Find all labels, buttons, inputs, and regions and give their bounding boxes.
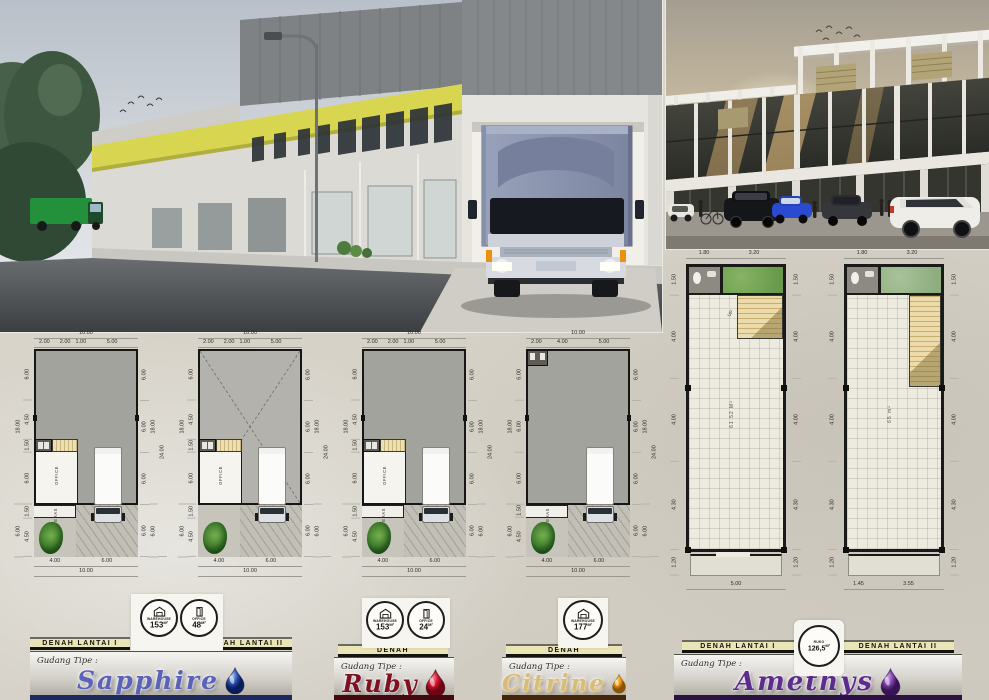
dim-bottom-total: 10.00 <box>198 569 302 577</box>
denah-bar-amethys-lantai-2: DENAH LANTAI II <box>842 640 954 653</box>
teras-strip: TERAS <box>362 505 404 518</box>
dim-label: 4.00 <box>362 559 404 565</box>
dim-label: 6.00 <box>187 349 196 401</box>
column-marker <box>33 415 37 421</box>
office-room: OFFICE <box>364 451 406 503</box>
ruby-gem-icon <box>425 669 446 697</box>
dim-top-segments: 2.00 2.00 1.00 5.00 <box>362 340 466 348</box>
office-room-label: OFFICE <box>218 466 223 485</box>
dim-label: 24.00 <box>158 349 167 557</box>
dim-label: 1.80 <box>686 251 722 257</box>
warehouse-area-badge: WAREHOUSE 153M² <box>140 599 178 637</box>
dim-label: 6.00 <box>468 349 477 401</box>
badge-value: 48M² <box>192 621 206 630</box>
office-area-badge: OFFICE 24M² <box>407 601 445 639</box>
accent-strip <box>502 695 626 700</box>
column-marker <box>685 547 691 553</box>
dim-bottom-total: 10.00 <box>526 569 630 577</box>
green-roof-patch <box>880 267 941 295</box>
dim-label: 4.30 <box>792 461 801 550</box>
dim-left-outer: 18.00 6.00 <box>506 349 515 557</box>
palm-tree <box>367 522 391 554</box>
dim-right-outer: 24.00 <box>158 349 167 557</box>
dim-label: 1.50 <box>351 505 360 519</box>
plan-drawing: OFFICE TERAS <box>34 349 138 557</box>
dim-right-outer: 24.00 <box>486 349 495 557</box>
dim-label: 1.50 <box>187 505 196 519</box>
toilet-room <box>35 439 52 452</box>
toilet-room <box>199 439 216 452</box>
denah-bar-label: DENAH LANTAI I <box>42 640 117 647</box>
ruko-room: UP 61.52 M² <box>686 264 786 552</box>
dim-label: 4.50 <box>351 518 360 557</box>
badge-unit: M² <box>201 620 206 625</box>
column-marker <box>781 547 787 553</box>
dim-left: 1.50 4.00 4.00 4.30 1.20 <box>828 264 837 576</box>
dim-label: 4.50 <box>23 518 32 557</box>
dim-label: 6.00 <box>468 505 477 557</box>
dim-right-inner: 6.00 6.00 6.00 6.00 <box>304 349 313 557</box>
room-area-label: 65 m² <box>887 405 893 423</box>
dim-label: 4.30 <box>950 461 959 550</box>
dim-top-segments: 1.80 3.20 <box>844 251 944 259</box>
badge-value: 153M² <box>376 623 394 632</box>
dim-label: 6.00 <box>240 559 302 565</box>
dim-right-mid: 18.00 6.00 <box>477 349 486 557</box>
toilet-room <box>847 267 880 295</box>
floor-plan-sapphire-lantai-2: 10.00 2.00 2.00 1.00 5.00 18.00 6.00 6.0… <box>178 331 340 607</box>
dim-label: 6.00 <box>140 453 149 505</box>
dark-cladding <box>462 0 662 95</box>
dim-label: 4.00 <box>792 296 801 379</box>
dim-label: 6.00 <box>140 505 149 557</box>
dim-label: 1.50 <box>950 264 959 296</box>
dim-right-inner: 6.00 6.00 6.00 6.00 <box>468 349 477 557</box>
denah-bar-label: DENAH LANTAI II <box>859 643 938 650</box>
citrine-gem-icon <box>612 670 626 697</box>
dim-label: 18.00 <box>14 349 23 505</box>
room-area-label: 61.52 M² <box>729 400 735 428</box>
column-marker <box>843 547 849 553</box>
dim-bottom-total: 10.00 <box>34 569 138 577</box>
dim-label: 4.00 <box>950 379 959 462</box>
dim-label: 6.00 <box>304 505 313 557</box>
dim-label: 6.00 <box>304 453 313 505</box>
office-door-icon <box>193 606 206 617</box>
dim-label: 6.00 <box>351 453 360 505</box>
dim-top-segments: 2.00 4.00 5.00 <box>526 340 630 348</box>
column-marker <box>939 385 945 391</box>
dim-bottom-total: 5.00 <box>686 582 786 590</box>
office-room: OFFICE <box>36 451 78 503</box>
dim-bottom-segments: 4.00 6.00 <box>362 559 466 567</box>
badge-unit: M² <box>163 620 168 625</box>
truck-cab <box>94 506 122 523</box>
dim-label: 10.00 <box>34 331 138 337</box>
ruko-facade-render <box>666 0 989 249</box>
warehouse-icon <box>379 608 392 619</box>
dim-bottom-segments: 4.00 6.00 <box>526 559 630 567</box>
badge-unit: M² <box>825 643 830 648</box>
dim-label: 1.20 <box>670 550 679 576</box>
dim-label: 6.00 <box>632 505 641 557</box>
dim-label: 5.00 <box>578 340 630 346</box>
dim-label: 6.00 <box>23 453 32 505</box>
dim-right-inner: 6.00 6.00 6.00 6.00 <box>632 349 641 557</box>
office-room: OFFICE <box>200 451 242 503</box>
dim-label: 18.00 <box>149 349 158 505</box>
dim-left-outer: 18.00 6.00 <box>14 349 23 557</box>
warehouse-area-badge: WAREHOUSE 153M² <box>366 601 404 639</box>
porch <box>690 554 782 576</box>
staircase <box>52 439 78 452</box>
dim-label: 6.00 <box>515 349 524 401</box>
office-area-badge: OFFICE 48M² <box>180 599 218 637</box>
dim-label: 6.00 <box>477 505 486 558</box>
dim-label: 6.00 <box>506 505 515 558</box>
dim-label: 1.50 <box>792 264 801 296</box>
ruko-area-badge: RUKO 126,5M² <box>798 625 840 667</box>
badge-value: 24M² <box>419 623 433 632</box>
dim-top-total: 10.00 <box>526 331 630 339</box>
dim-top-segments: 1.80 3.20 <box>686 251 786 259</box>
dim-right-mid: 18.00 6.00 <box>313 349 322 557</box>
parked-truck-topview <box>422 447 450 523</box>
dim-label: 4.00 <box>34 559 76 565</box>
dim-label: 10.00 <box>362 569 466 575</box>
warehouse-hall: OFFICE <box>34 349 138 505</box>
dim-label: 6.00 <box>304 401 313 453</box>
type-name-ruby: Ruby <box>342 669 418 698</box>
dim-label: 6.00 <box>351 349 360 401</box>
staircase <box>216 439 242 452</box>
column-marker <box>135 415 139 421</box>
dim-label: 24.00 <box>486 349 495 557</box>
brochure-page: 10.00 2.00 2.00 1.00 5.00 18.00 6.00 6.0… <box>0 0 989 700</box>
dim-label: 6.00 <box>140 349 149 401</box>
dim-label: 24.00 <box>650 349 659 557</box>
accent-strip <box>674 695 962 700</box>
dim-label: 18.00 <box>477 349 486 505</box>
dim-label: 3.20 <box>722 251 786 257</box>
amethys-gem-icon <box>880 668 901 696</box>
toilet-room <box>689 267 722 295</box>
dim-label: 4.00 <box>670 296 679 379</box>
dim-label: 1.50 <box>351 439 360 453</box>
truck-windshield <box>588 508 612 514</box>
palm-tree <box>203 522 227 554</box>
denah-bar-sapphire-lantai-1: DENAH LANTAI I <box>30 637 130 650</box>
dim-left: 1.50 4.00 4.00 4.30 1.20 <box>670 264 679 576</box>
dim-label: 6.00 <box>149 505 158 558</box>
column-marker <box>781 385 787 391</box>
column-marker <box>939 547 945 553</box>
dim-label: 18.00 <box>641 349 650 505</box>
office-room-label: OFFICE <box>382 466 387 485</box>
dim-left-inner: 6.00 4.50 1.50 6.00 1.50 4.50 <box>351 349 360 557</box>
dim-bottom-total: 10.00 <box>362 569 466 577</box>
dim-right-outer: 24.00 <box>322 349 331 557</box>
denah-bar-amethys-lantai-1: DENAH LANTAI I <box>682 640 794 653</box>
dim-top-total: 10.00 <box>198 331 302 339</box>
dim-label: 6.00 <box>568 559 630 565</box>
dim-label: 2.00 <box>383 340 404 346</box>
dim-right: 1.50 4.00 4.00 4.30 1.20 <box>792 264 801 576</box>
type-name-sapphire: Sapphire <box>77 666 219 695</box>
office-door-icon <box>420 608 433 619</box>
truck-trailer <box>258 447 286 505</box>
plan-drawing: OFFICE TERAS <box>362 349 466 557</box>
badge-number: 48 <box>192 621 201 630</box>
type-name-row: Citrine <box>502 658 626 700</box>
warehouse-hall <box>526 349 630 505</box>
garden-patch <box>722 267 783 295</box>
dim-top-segments: 2.00 2.00 1.00 5.00 <box>34 340 138 348</box>
dim-label: 5.00 <box>414 340 466 346</box>
type-name-row: Sapphire <box>30 652 292 700</box>
dim-label: 6.00 <box>632 453 641 505</box>
column-marker <box>627 415 631 421</box>
teras-strip: TERAS <box>526 505 568 518</box>
dim-label: 1.00 <box>403 340 414 346</box>
warehouse-area-badge: WAREHOUSE 177M² <box>563 600 603 640</box>
denah-bar-label: DENAH LANTAI I <box>700 643 775 650</box>
column-marker <box>361 415 365 421</box>
dim-label: 6.00 <box>632 349 641 401</box>
parked-truck-topview <box>586 447 614 523</box>
floor-plan-amethys-lantai-2: 1.80 3.20 1.50 4.00 4.00 4.30 1.20 65 m² <box>826 250 962 622</box>
dim-left-inner: 6.00 6.00 6.00 1.50 4.50 <box>515 349 524 557</box>
dim-label: 10.00 <box>526 331 630 337</box>
truck-windshield <box>96 508 120 514</box>
plan-drawing: OFFICE <box>198 349 302 557</box>
dim-label: 1.50 <box>23 439 32 453</box>
truck-trailer <box>586 447 614 505</box>
dim-label: 18.00 <box>342 349 351 505</box>
gudang-tipe-panel-sapphire: Gudang Tipe : Sapphire <box>30 651 292 700</box>
dim-label: 2.00 <box>198 340 219 346</box>
dim-label: 4.50 <box>351 401 360 440</box>
truck-trailer <box>94 447 122 505</box>
badge-value: 126,5M² <box>808 644 830 652</box>
dim-label: 1.50 <box>187 439 196 453</box>
dim-label: 2.00 <box>34 340 55 346</box>
dim-label: 6.00 <box>14 505 23 558</box>
dim-bottom-segments: 4.00 6.00 <box>198 559 302 567</box>
floor-plan-ruby: 10.00 2.00 2.00 1.00 5.00 18.00 6.00 6.0… <box>342 331 504 607</box>
dim-label: 18.00 <box>313 349 322 505</box>
dim-label: 5.00 <box>250 340 302 346</box>
dim-top-segments: 2.00 2.00 1.00 5.00 <box>198 340 302 348</box>
dim-label: 4.00 <box>828 379 837 462</box>
dim-top-total: 10.00 <box>362 331 466 339</box>
dim-label: 5.00 <box>86 340 138 346</box>
warehouse-icon <box>153 606 166 617</box>
dim-label: 10.00 <box>362 331 466 337</box>
truck-cab <box>258 506 286 523</box>
floor-plan-sapphire-lantai-1: 10.00 2.00 2.00 1.00 5.00 18.00 6.00 6.0… <box>14 331 176 607</box>
stair-up-label: UP <box>726 309 734 317</box>
dim-label: 6.00 <box>468 401 477 453</box>
dim-left-inner: 6.00 4.50 1.50 6.00 1.50 4.50 <box>23 349 32 557</box>
plan-drawing: UP 61.52 M² <box>686 264 786 576</box>
dim-label: 10.00 <box>34 569 138 575</box>
dim-label: 6.00 <box>140 401 149 453</box>
dim-label: 6.00 <box>342 505 351 558</box>
dim-label: 1.50 <box>670 264 679 296</box>
gudang-tipe-panel-ruby: Gudang Tipe : Ruby <box>334 657 454 700</box>
dim-label: 6.00 <box>304 349 313 401</box>
truck-windshield <box>260 508 284 514</box>
dim-label: 1.50 <box>828 264 837 296</box>
badge-unit: M² <box>587 622 592 627</box>
dim-top-total: 10.00 <box>34 331 138 339</box>
staircase <box>909 295 941 387</box>
dim-label: 2.00 <box>55 340 76 346</box>
badge-number: 177 <box>574 623 587 632</box>
dim-label: 6.00 <box>468 453 477 505</box>
dim-label: 18.00 <box>506 349 515 505</box>
dim-label: 6.00 <box>23 349 32 401</box>
dim-label: 1.00 <box>239 340 250 346</box>
dim-label: 1.20 <box>828 550 837 576</box>
dim-right-mid: 18.00 6.00 <box>641 349 650 557</box>
truck-cab <box>586 506 614 523</box>
dim-label: 2.00 <box>526 340 547 346</box>
dim-label: 6.00 <box>313 505 322 558</box>
parked-truck-topview <box>258 447 286 523</box>
dim-label: 5.00 <box>686 582 786 588</box>
palm-tree <box>531 522 555 554</box>
upper-floor-hall: OFFICE <box>198 349 302 505</box>
dim-label: 6.00 <box>515 401 524 453</box>
staircase <box>380 439 406 452</box>
dim-label: 4.00 <box>547 340 578 346</box>
dim-label: 3.20 <box>880 251 944 257</box>
column-marker <box>463 415 467 421</box>
column-marker <box>525 415 529 421</box>
dim-label: 1.00 <box>75 340 86 346</box>
column-marker <box>685 385 691 391</box>
office-room-label: OFFICE <box>54 466 59 485</box>
truck-windshield <box>424 508 448 514</box>
toilet-room <box>527 350 548 366</box>
warehouse-hall: OFFICE <box>362 349 466 505</box>
staircase <box>737 295 783 339</box>
dim-left-outer: 18.00 6.00 <box>178 349 187 557</box>
badge-number: 153 <box>376 623 389 632</box>
accent-strip <box>30 695 292 700</box>
dim-label: 6.00 <box>641 505 650 558</box>
warehouse-street-render <box>0 0 662 332</box>
plan-drawing: 65 m² <box>844 264 944 576</box>
accent-strip <box>334 695 454 700</box>
dim-bottom-segments: 4.00 6.00 <box>34 559 138 567</box>
badge-value: 153M² <box>150 621 168 630</box>
dim-label: 2.00 <box>362 340 383 346</box>
dim-label: 1.45 <box>844 582 873 588</box>
entry-door-gap <box>716 552 750 557</box>
dim-label: 10.00 <box>198 331 302 337</box>
dim-label: 6.00 <box>187 453 196 505</box>
dim-right-mid: 18.00 6.00 <box>149 349 158 557</box>
dim-label: 4.00 <box>792 379 801 462</box>
dim-label: 1.80 <box>844 251 880 257</box>
badge-number: 24 <box>419 623 428 632</box>
truck-trailer <box>422 447 450 505</box>
dim-label: 10.00 <box>526 569 630 575</box>
plan-drawing: TERAS <box>526 349 630 557</box>
dim-label: 4.50 <box>515 518 524 557</box>
badge-unit: M² <box>389 622 394 627</box>
balcony-strip <box>848 554 940 576</box>
dim-label: 1.50 <box>23 505 32 519</box>
warehouse-icon <box>577 608 590 619</box>
dim-left-inner: 6.00 4.50 1.50 6.00 1.50 4.50 <box>187 349 196 557</box>
sapphire-gem-icon <box>225 667 245 694</box>
dim-label: 6.00 <box>515 453 524 505</box>
dim-label: 18.00 <box>178 349 187 505</box>
dim-label: 6.00 <box>632 401 641 453</box>
dim-label: 4.50 <box>187 518 196 557</box>
warehouse-street-svg <box>0 0 662 332</box>
dim-right-outer: 24.00 <box>650 349 659 557</box>
type-name-citrine: Citrine <box>502 670 606 697</box>
palm-tree <box>39 522 63 554</box>
dim-label: 3.55 <box>873 582 944 588</box>
badge-number: 153 <box>150 621 163 630</box>
floor-plan-citrine: 10.00 2.00 4.00 5.00 18.00 6.00 6.00 6.0… <box>506 331 668 607</box>
dim-bottom-segments: 1.45 3.55 <box>844 582 944 590</box>
toilet-room <box>363 439 380 452</box>
ruko-room: 65 m² <box>844 264 944 552</box>
dim-label: 1.20 <box>792 550 801 576</box>
column-marker <box>843 385 849 391</box>
badge-value: 177M² <box>574 623 592 632</box>
badge-number: 126,5 <box>808 645 826 652</box>
dim-label: 4.30 <box>670 461 679 550</box>
dim-label: 24.00 <box>322 349 331 557</box>
parked-truck-topview <box>94 447 122 523</box>
floor-plan-amethys-lantai-1: 1.80 3.20 1.50 4.00 4.00 4.30 1.20 UP 61… <box>668 250 804 622</box>
dim-label: 4.00 <box>670 379 679 462</box>
ruko-facade-svg <box>666 0 989 249</box>
dim-label: 4.50 <box>23 401 32 440</box>
gudang-tipe-panel-citrine: Gudang Tipe : Citrine <box>502 657 626 700</box>
dim-label: 4.00 <box>198 559 240 565</box>
badge-unit: M² <box>428 622 433 627</box>
dim-label: 4.00 <box>950 296 959 379</box>
teras-strip: TERAS <box>34 505 76 518</box>
dim-label: 6.00 <box>404 559 466 565</box>
dim-label: 1.20 <box>950 550 959 576</box>
dim-label: 10.00 <box>198 569 302 575</box>
dim-label: 4.30 <box>828 461 837 550</box>
truck-cab <box>422 506 450 523</box>
dim-label: 4.00 <box>526 559 568 565</box>
dim-label: 6.00 <box>178 505 187 558</box>
dim-right-inner: 6.00 6.00 6.00 6.00 <box>140 349 149 557</box>
type-name-row: Ruby <box>334 658 454 700</box>
dim-label: 6.00 <box>76 559 138 565</box>
dim-label: 4.50 <box>187 401 196 440</box>
dim-right: 1.50 4.00 4.00 4.30 1.20 <box>950 264 959 576</box>
dim-left-outer: 18.00 6.00 <box>342 349 351 557</box>
dim-label: 4.00 <box>828 296 837 379</box>
dim-label: 1.50 <box>515 504 524 518</box>
dim-label: 2.00 <box>219 340 240 346</box>
